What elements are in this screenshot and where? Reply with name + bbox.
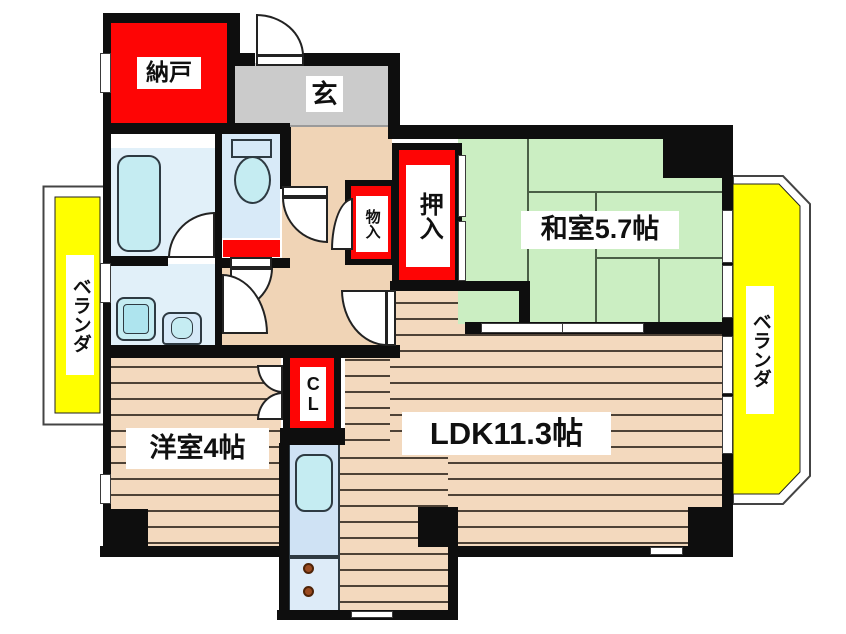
pillar <box>688 507 733 549</box>
toilet-shelf <box>223 240 280 257</box>
wall <box>388 53 400 131</box>
kitchen-stove-unit <box>288 557 340 612</box>
window <box>722 336 733 394</box>
washing-machine-drum-icon <box>123 304 149 334</box>
entrance-door-leaf <box>256 55 304 66</box>
wall <box>103 123 290 134</box>
label-ldk: LDK11.3帖 <box>402 412 611 455</box>
wall <box>103 13 240 23</box>
tatami-line <box>658 257 660 324</box>
wall <box>227 22 235 123</box>
label-cl: CL <box>300 367 326 421</box>
window <box>722 265 733 318</box>
window <box>722 210 733 263</box>
label-veranda-left: ベランダ <box>66 255 94 375</box>
label-yoshitsu: 洋室4帖 <box>126 428 269 469</box>
wall <box>280 428 345 445</box>
wall <box>238 53 255 66</box>
label-veranda-right: ベランダ <box>746 286 774 414</box>
window <box>722 396 733 454</box>
pillar <box>663 125 733 178</box>
wall <box>303 53 400 66</box>
wall <box>103 256 168 266</box>
wall <box>390 281 530 291</box>
stove-burner-icon <box>303 586 314 597</box>
label-washitsu: 和室5.7帖 <box>521 211 679 249</box>
label-monoire: 物入 <box>356 196 388 252</box>
wall <box>100 546 285 557</box>
sliding-door <box>481 323 563 333</box>
window <box>100 263 111 303</box>
window <box>650 547 683 555</box>
wall <box>448 553 458 620</box>
fusuma-door <box>458 155 466 217</box>
ldk-door-leaf <box>386 290 396 346</box>
pillar <box>418 507 458 547</box>
fusuma-door <box>458 221 466 281</box>
stove-burner-icon <box>303 563 314 574</box>
wall <box>280 127 291 189</box>
window <box>100 53 111 93</box>
wall <box>103 345 400 358</box>
label-nando: 納戸 <box>137 57 201 89</box>
washbasin-bowl-icon <box>171 317 193 339</box>
floor-plan: 納戸 玄 物入 押入 和室5.7帖 LDK11.3帖 洋室4帖 CL ベランダ … <box>0 0 846 634</box>
toilet-door-leaf <box>230 257 272 268</box>
label-genkan: 玄 <box>306 76 343 112</box>
sliding-door <box>562 323 644 333</box>
label-oshiire: 押入 <box>406 165 450 267</box>
genkan-hall-door-leaf <box>282 186 328 197</box>
wall <box>519 281 530 328</box>
tatami-line <box>527 191 724 193</box>
pillar <box>103 509 148 547</box>
kitchen-sink-icon <box>295 454 333 512</box>
window <box>100 474 111 504</box>
bathtub-icon <box>117 155 161 252</box>
wall <box>215 127 222 356</box>
entrance-door-arc <box>256 14 304 56</box>
toilet-bowl-icon <box>234 156 271 204</box>
window <box>351 611 393 618</box>
wall <box>279 443 289 620</box>
